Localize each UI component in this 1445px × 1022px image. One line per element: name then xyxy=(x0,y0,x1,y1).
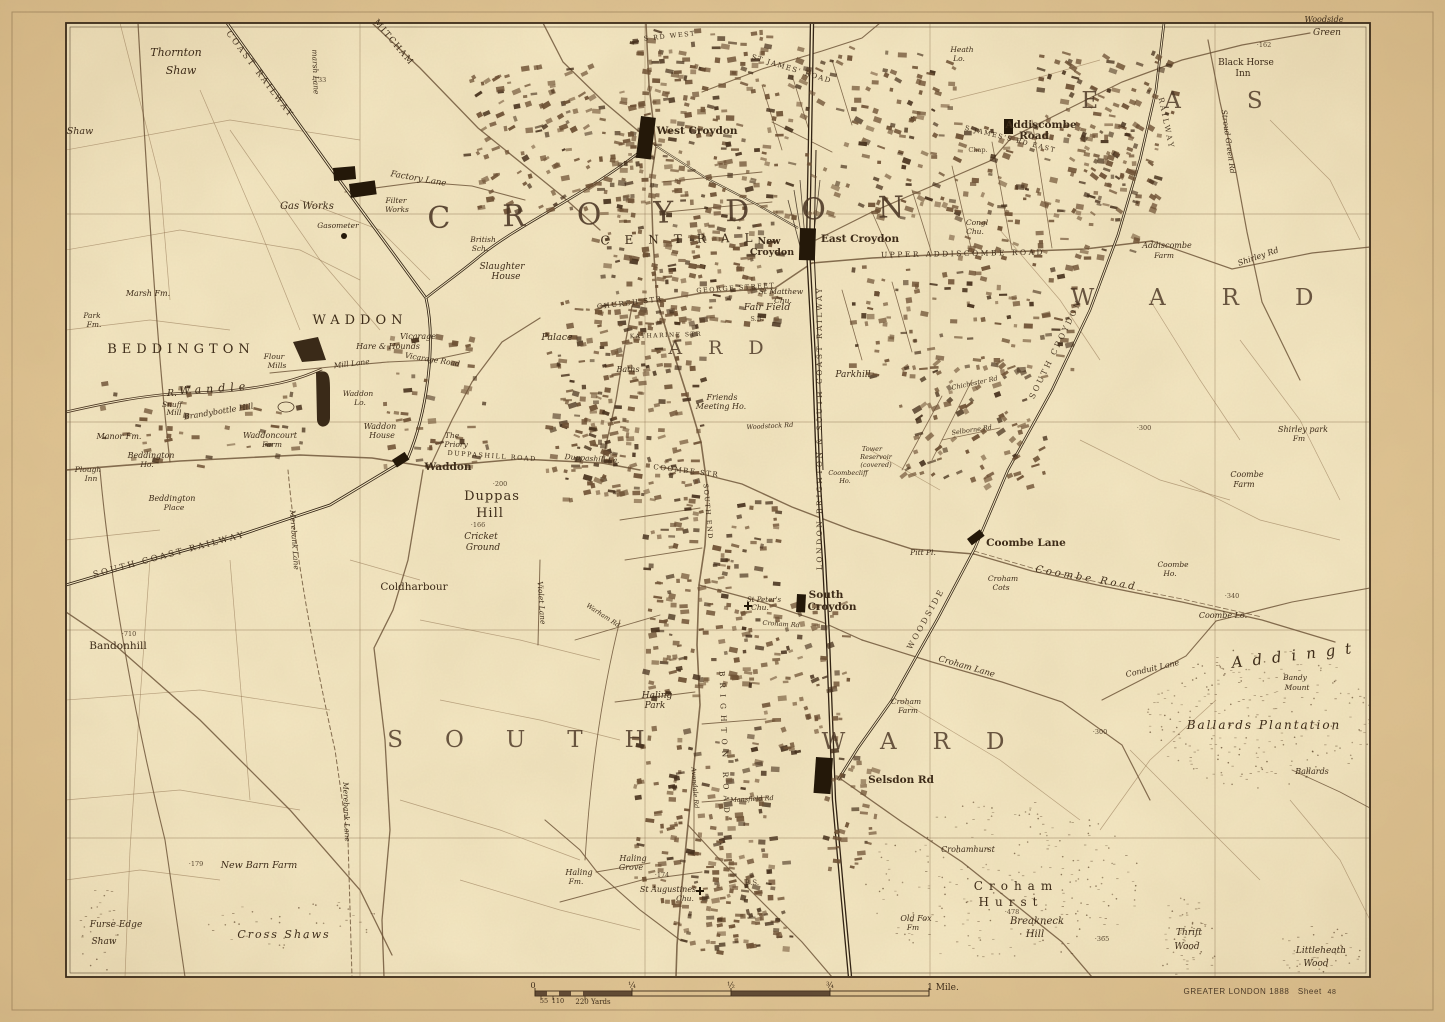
tree-dot xyxy=(1204,672,1206,674)
tree-dot xyxy=(1349,962,1351,964)
scrub-dash xyxy=(1317,685,1319,686)
building xyxy=(773,582,781,587)
building xyxy=(723,867,729,871)
tree-dot xyxy=(1256,752,1258,754)
map-label: Duppas xyxy=(464,489,520,504)
scrub-dash xyxy=(1292,953,1294,954)
building xyxy=(1104,135,1108,140)
tree-dot xyxy=(1059,840,1061,842)
tree-dot xyxy=(323,922,325,924)
map-label: Waddon xyxy=(364,422,397,431)
tree-dot xyxy=(208,924,210,926)
building xyxy=(1049,220,1055,222)
building xyxy=(930,366,939,369)
building xyxy=(682,321,685,323)
building xyxy=(681,619,689,624)
building xyxy=(733,941,739,944)
building xyxy=(1036,231,1044,236)
tree-dot xyxy=(1161,739,1163,741)
tree-dot xyxy=(1224,709,1226,711)
scrub-dash xyxy=(1359,744,1361,745)
building xyxy=(430,439,436,444)
building xyxy=(836,846,840,848)
scrub-dash xyxy=(1071,953,1073,954)
tree-dot xyxy=(1089,917,1091,919)
building xyxy=(698,832,702,837)
map-label: Ballards xyxy=(1294,767,1329,776)
map-label: Bandy xyxy=(1282,673,1308,682)
building xyxy=(861,313,866,319)
scrub-dash xyxy=(970,901,972,902)
scrub-dash xyxy=(1247,708,1249,709)
map-label: ·365 xyxy=(1095,935,1109,943)
building xyxy=(1157,133,1162,138)
building xyxy=(641,341,645,345)
building xyxy=(727,826,735,831)
scrub-dash xyxy=(111,891,113,892)
tree-dot xyxy=(967,878,969,880)
building xyxy=(772,719,776,722)
scrub-dash xyxy=(949,882,951,883)
scrub-dash xyxy=(924,845,926,846)
scrub-dash xyxy=(1173,741,1175,742)
building xyxy=(771,766,780,772)
building xyxy=(733,246,740,250)
tree-dot xyxy=(1318,665,1320,667)
scrub-dash xyxy=(1238,682,1240,683)
tree-dot xyxy=(1299,963,1301,965)
building xyxy=(857,850,866,855)
tree-dot xyxy=(1114,835,1116,837)
tree-dot xyxy=(1174,695,1176,697)
building xyxy=(299,441,303,445)
building xyxy=(725,141,731,147)
building xyxy=(665,279,668,284)
building xyxy=(146,434,151,437)
os-map-sheet: ThorntonShawShawCOAST RAILWAYMITCHAMmars… xyxy=(0,0,1445,1022)
scrub-dash xyxy=(1033,872,1035,873)
scrub-dash xyxy=(232,913,234,914)
tree-dot xyxy=(1219,665,1221,667)
building xyxy=(1057,210,1064,212)
building xyxy=(738,822,745,826)
tree-dot xyxy=(1046,835,1048,837)
building xyxy=(691,459,700,462)
map-label: Vicarage xyxy=(400,332,436,341)
building xyxy=(950,319,957,323)
tree-dot xyxy=(1108,847,1110,849)
scrub-dash xyxy=(1063,901,1065,902)
scrub-dash xyxy=(1048,845,1050,846)
east-croydon-station-marker xyxy=(799,228,816,261)
building xyxy=(664,164,673,169)
scrub-dash xyxy=(1335,667,1337,668)
tree-dot xyxy=(902,882,904,884)
tree-dot xyxy=(1178,760,1180,762)
building xyxy=(642,534,649,540)
tree-dot xyxy=(1196,677,1198,679)
building xyxy=(642,187,646,191)
map-label: Baths xyxy=(615,365,639,374)
building xyxy=(1131,129,1135,132)
tree-dot xyxy=(1352,697,1354,699)
scrub-dash xyxy=(1218,713,1220,714)
building xyxy=(1016,184,1025,190)
building xyxy=(682,57,690,61)
building xyxy=(886,316,890,318)
scrub-dash xyxy=(1207,694,1209,695)
tree-dot xyxy=(1135,885,1137,887)
scrub-dash xyxy=(106,890,108,891)
building xyxy=(732,626,737,631)
tree-dot xyxy=(298,907,300,909)
map-label: Manor Fm. xyxy=(96,432,142,441)
tree-dot xyxy=(977,955,979,957)
building xyxy=(1023,339,1032,342)
building xyxy=(467,426,476,429)
scrub-dash xyxy=(1283,960,1285,961)
building xyxy=(671,899,675,905)
building xyxy=(734,564,739,569)
scrub-dash xyxy=(1192,957,1194,958)
tree-dot xyxy=(1162,729,1164,731)
scrub-dash xyxy=(962,924,964,925)
building xyxy=(642,290,647,293)
scrub-dash xyxy=(1179,916,1181,917)
tree-dot xyxy=(1027,841,1029,843)
scrub-dash xyxy=(960,869,962,870)
tree-dot xyxy=(1193,768,1195,770)
building xyxy=(655,582,663,584)
tree-dot xyxy=(1183,899,1185,901)
map-label: Wood xyxy=(1303,959,1328,969)
building xyxy=(590,410,597,413)
tree-dot xyxy=(1291,711,1293,713)
tree-dot xyxy=(973,802,975,804)
map-label: Croydon xyxy=(808,601,857,613)
scrub-dash xyxy=(1182,939,1184,940)
tree-dot xyxy=(1148,709,1150,711)
building xyxy=(635,161,640,167)
tree-dot xyxy=(279,916,281,918)
building xyxy=(889,88,893,92)
scrub-dash xyxy=(1186,915,1188,916)
scrub-dash xyxy=(928,888,930,889)
scrub-dash xyxy=(1209,744,1211,745)
tree-dot xyxy=(1164,715,1166,717)
building xyxy=(690,69,696,74)
building xyxy=(671,305,678,310)
building xyxy=(941,104,950,108)
tree-dot xyxy=(1233,650,1235,652)
map-label: Coombe xyxy=(1230,470,1263,479)
scrub-dash xyxy=(1099,917,1101,918)
south-ward-label: SOUTH xyxy=(387,727,686,753)
tree-dot xyxy=(1170,718,1172,720)
building xyxy=(767,539,773,543)
scrub-dash xyxy=(1125,855,1127,856)
map-label: Old Fox xyxy=(900,914,932,923)
building xyxy=(396,372,399,374)
south-ward-label-2: WARD xyxy=(822,729,1041,755)
scrub-dash xyxy=(1169,917,1171,918)
scrub-dash xyxy=(1284,698,1286,699)
tree-dot xyxy=(1335,960,1337,962)
building xyxy=(652,78,660,83)
map-label: Thornton xyxy=(150,46,202,59)
building xyxy=(590,359,595,362)
building xyxy=(641,178,648,182)
building xyxy=(854,98,861,103)
building xyxy=(997,226,1003,231)
building xyxy=(906,268,911,271)
scrub-dash xyxy=(1256,740,1258,741)
building xyxy=(882,363,886,365)
map-label: Cross Shaws xyxy=(237,928,330,941)
building xyxy=(796,102,802,107)
scrub-dash xyxy=(1204,924,1206,925)
tree-dot xyxy=(1019,815,1021,817)
building xyxy=(683,95,688,101)
map-label: Green xyxy=(1313,28,1341,38)
building xyxy=(763,576,767,579)
tree-dot xyxy=(943,857,945,859)
tree-dot xyxy=(1200,951,1202,953)
tree-dot xyxy=(1071,897,1073,899)
building xyxy=(768,895,774,901)
scrub-dash xyxy=(1216,665,1218,666)
scrub-dash xyxy=(956,942,958,943)
building xyxy=(740,43,747,46)
building xyxy=(852,86,860,91)
building xyxy=(628,132,634,137)
scrub-dash xyxy=(1335,746,1337,747)
scrub-dash xyxy=(939,953,941,954)
building xyxy=(766,35,773,38)
tree-dot xyxy=(316,922,318,924)
scrub-dash xyxy=(1103,901,1105,902)
building xyxy=(383,402,387,406)
tree-dot xyxy=(1339,747,1341,749)
building xyxy=(610,183,615,187)
building xyxy=(820,656,828,660)
scrub-dash xyxy=(338,902,340,903)
tree-dot xyxy=(309,913,311,915)
scale-half: ½ xyxy=(727,981,735,990)
tree-dot xyxy=(1166,963,1168,965)
tree-dot xyxy=(941,877,943,879)
scale-bar-segment xyxy=(559,991,571,996)
building xyxy=(761,848,765,852)
scrub-dash xyxy=(984,830,986,831)
building xyxy=(687,161,691,166)
building xyxy=(987,169,992,173)
scrub-dash xyxy=(1010,929,1012,930)
tree-dot xyxy=(1089,825,1091,827)
scrub-dash xyxy=(1326,943,1328,944)
building xyxy=(639,391,643,394)
tree-dot xyxy=(1069,821,1071,823)
building xyxy=(646,649,651,654)
tree-dot xyxy=(865,884,867,886)
tree-dot xyxy=(1206,777,1208,779)
building xyxy=(113,392,118,396)
tree-dot xyxy=(1136,862,1138,864)
tree-dot xyxy=(1182,914,1184,916)
building xyxy=(727,173,733,178)
map-label: Meeting Ho. xyxy=(695,402,746,411)
scrub-dash xyxy=(1311,926,1313,927)
scrub-dash xyxy=(1274,692,1276,693)
tree-dot xyxy=(1061,943,1063,945)
scrub-dash xyxy=(978,938,980,939)
building xyxy=(827,847,836,850)
scrub-dash xyxy=(1132,881,1134,882)
scrub-dash xyxy=(1164,698,1166,699)
map-label: House xyxy=(490,272,520,282)
scrub-dash xyxy=(1167,756,1169,757)
scrub-dash xyxy=(992,939,994,940)
tree-dot xyxy=(96,958,98,960)
scrub-dash xyxy=(1245,687,1247,688)
tree-dot xyxy=(962,805,964,807)
building xyxy=(932,297,936,300)
map-label: Chu. xyxy=(676,894,694,903)
building xyxy=(562,423,569,429)
scrub-dash xyxy=(1216,657,1218,658)
building xyxy=(689,499,696,504)
tree-dot xyxy=(1363,697,1365,699)
tree-dot xyxy=(373,913,375,915)
building xyxy=(383,464,387,470)
tree-dot xyxy=(1313,698,1315,700)
tree-dot xyxy=(339,907,341,909)
building xyxy=(1111,175,1114,179)
scrub-dash xyxy=(1325,710,1327,711)
tree-dot xyxy=(1197,663,1199,665)
tree-dot xyxy=(339,925,341,927)
building xyxy=(735,914,743,917)
building xyxy=(577,447,580,449)
tree-dot xyxy=(337,905,339,907)
scrub-dash xyxy=(1240,677,1242,678)
scrub-dash xyxy=(1349,717,1351,718)
scrub-dash xyxy=(978,807,980,808)
building xyxy=(674,179,678,183)
building xyxy=(603,263,612,269)
tree-dot xyxy=(90,931,92,933)
scrub-dash xyxy=(1254,695,1256,696)
scale-mile: 1 Mile. xyxy=(927,983,959,993)
building xyxy=(600,274,605,278)
scrub-dash xyxy=(972,819,974,820)
scrub-dash xyxy=(1010,947,1012,948)
scrub-dash xyxy=(888,869,890,870)
building xyxy=(1014,324,1018,328)
map-label: Haling xyxy=(641,691,673,701)
scrub-dash xyxy=(936,817,938,818)
tree-dot xyxy=(1185,743,1187,745)
building xyxy=(721,109,727,112)
building xyxy=(778,695,787,701)
building xyxy=(467,364,474,368)
scrub-dash xyxy=(109,911,111,912)
scrub-dash xyxy=(955,827,957,828)
scrub-dash xyxy=(908,933,910,934)
scrub-dash xyxy=(1238,672,1240,673)
tree-dot xyxy=(1045,908,1047,910)
building xyxy=(680,278,686,283)
building xyxy=(680,609,689,614)
building xyxy=(634,487,640,490)
central-ward-label: CENTRAL xyxy=(600,231,767,248)
building xyxy=(658,399,665,404)
building xyxy=(630,166,634,171)
st-augustines-church-cross-icon xyxy=(696,890,704,892)
building xyxy=(821,625,828,631)
building xyxy=(948,279,954,284)
building xyxy=(1104,123,1113,126)
tree-dot xyxy=(1295,743,1297,745)
tree-dot xyxy=(1312,751,1314,753)
scrub-dash xyxy=(1179,738,1181,739)
map-label: Croham xyxy=(988,574,1018,583)
tree-dot xyxy=(1186,912,1188,914)
building xyxy=(877,161,881,164)
attribution-sheet-word: Sheet xyxy=(1298,987,1322,996)
building xyxy=(674,70,682,74)
building xyxy=(674,289,678,293)
tree-dot xyxy=(1231,783,1233,785)
building xyxy=(1003,147,1010,150)
tree-dot xyxy=(1171,703,1173,705)
building xyxy=(758,809,762,814)
tree-dot xyxy=(1080,902,1082,904)
building xyxy=(614,309,621,315)
building xyxy=(1114,124,1121,130)
building xyxy=(703,631,709,635)
building xyxy=(774,164,778,167)
west-croydon-station-label: West Croydon xyxy=(655,125,737,137)
building xyxy=(850,320,857,325)
tree-dot xyxy=(1103,859,1105,861)
building xyxy=(767,612,772,615)
tree-dot xyxy=(1199,953,1201,955)
scrub-dash xyxy=(1084,845,1086,846)
tree-dot xyxy=(271,918,273,920)
scrub-dash xyxy=(1296,960,1298,961)
map-label: Coombe xyxy=(1157,560,1189,569)
scrub-dash xyxy=(1062,906,1064,907)
tree-dot xyxy=(1062,856,1064,858)
tree-dot xyxy=(1211,928,1213,930)
building xyxy=(634,499,642,503)
tree-dot xyxy=(106,969,108,971)
tree-dot xyxy=(985,864,987,866)
map-label: Croham xyxy=(891,697,921,706)
map-label: Sch. xyxy=(472,244,489,253)
building xyxy=(832,716,838,721)
map-label: House xyxy=(368,431,395,440)
tree-dot xyxy=(1086,914,1088,916)
tree-dot xyxy=(96,906,98,908)
tree-dot xyxy=(1028,813,1030,815)
building xyxy=(664,384,673,389)
scrub-dash xyxy=(1329,664,1331,665)
building xyxy=(700,68,706,72)
building xyxy=(681,481,685,484)
building xyxy=(833,681,839,686)
